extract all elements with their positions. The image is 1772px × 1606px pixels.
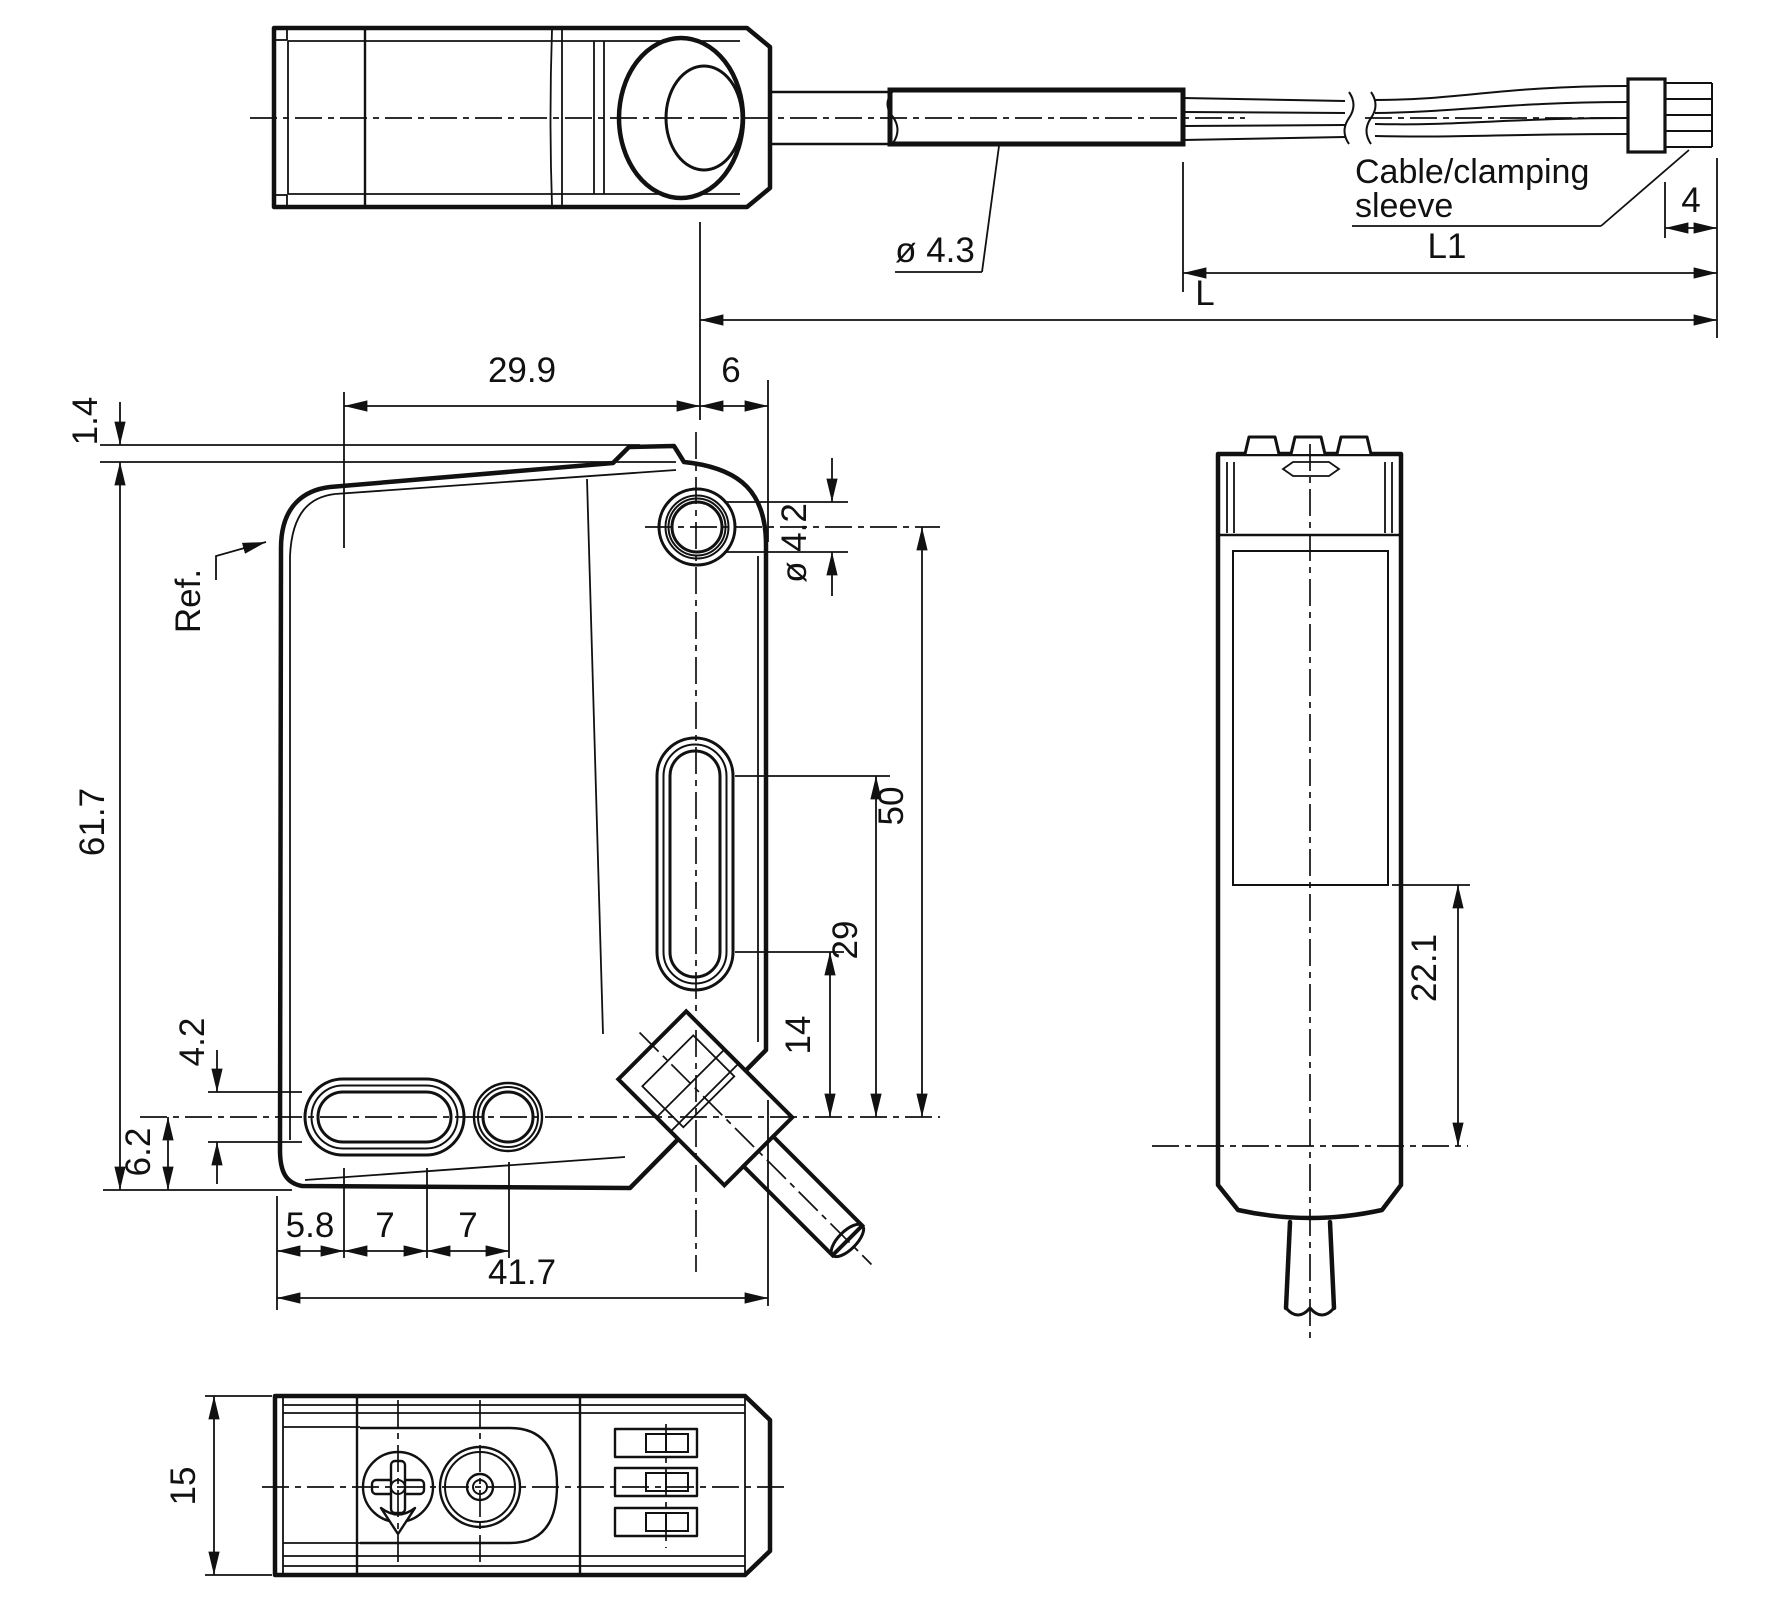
clamping-sleeve-block: [1628, 79, 1665, 152]
dim-label-1-4: 1.4: [66, 397, 105, 446]
cable-edge: [1286, 1222, 1290, 1308]
dim-label-7a: 7: [375, 1206, 394, 1245]
dim-label-14: 14: [779, 1016, 818, 1055]
dimensional-drawing-page: 29.9 6 ø 4.3 Cable/clamping sleeve 4 L1 …: [0, 0, 1772, 1606]
dim-label-4: 4: [1681, 181, 1700, 220]
top-tab: [1337, 437, 1371, 454]
cable-sheath: [890, 90, 1183, 144]
terminal-row: [615, 1429, 697, 1536]
wire: [1375, 86, 1628, 100]
bottom-view: [275, 1396, 770, 1575]
dim-label-15: 15: [164, 1467, 203, 1506]
wire: [1375, 102, 1628, 113]
dim-label-22-1: 22.1: [1405, 934, 1444, 1002]
dim-label-6: 6: [721, 351, 740, 390]
break-symbol: [1345, 92, 1354, 144]
ref-leader: [216, 542, 266, 580]
wire: [1375, 118, 1628, 124]
dim-label-29: 29: [826, 921, 865, 960]
dim-label-l1: L1: [1428, 227, 1467, 266]
dim-label-4-2: 4.2: [173, 1018, 212, 1067]
top-tab: [1291, 437, 1325, 454]
leader-line: [1601, 150, 1689, 226]
dim-label-hole-diameter: ø 4.2: [775, 503, 814, 583]
wire: [1183, 137, 1345, 140]
technical-drawing: 29.9 6 ø 4.3 Cable/clamping sleeve 4 L1 …: [0, 0, 1772, 1606]
cable-assembly: [888, 79, 1713, 152]
leader-line: [982, 146, 999, 272]
wire: [1183, 125, 1345, 126]
dim-label-6-2: 6.2: [119, 1128, 158, 1177]
dim-label-l: L: [1195, 274, 1214, 313]
dim-label-50: 50: [872, 787, 911, 826]
mounting-slot-outer: [657, 738, 733, 990]
ref-label: Ref.: [169, 569, 208, 633]
cable-sleeve-note-line1: Cable/clamping: [1355, 153, 1589, 191]
wire: [1375, 134, 1628, 137]
wire: [1183, 98, 1345, 101]
cable-sleeve-note-line2: sleeve: [1355, 187, 1453, 225]
dim-label-41-7: 41.7: [488, 1253, 556, 1292]
top-tab: [1245, 437, 1279, 454]
wire: [1183, 112, 1345, 113]
dim-label-29-9: 29.9: [488, 351, 556, 390]
dim-label-61-7: 61.7: [73, 788, 112, 856]
dim-label-7b: 7: [458, 1206, 477, 1245]
dim-label-cable-diameter: ø 4.3: [895, 231, 975, 270]
cable-edge: [1330, 1222, 1334, 1308]
dim-label-5-8: 5.8: [286, 1206, 335, 1245]
